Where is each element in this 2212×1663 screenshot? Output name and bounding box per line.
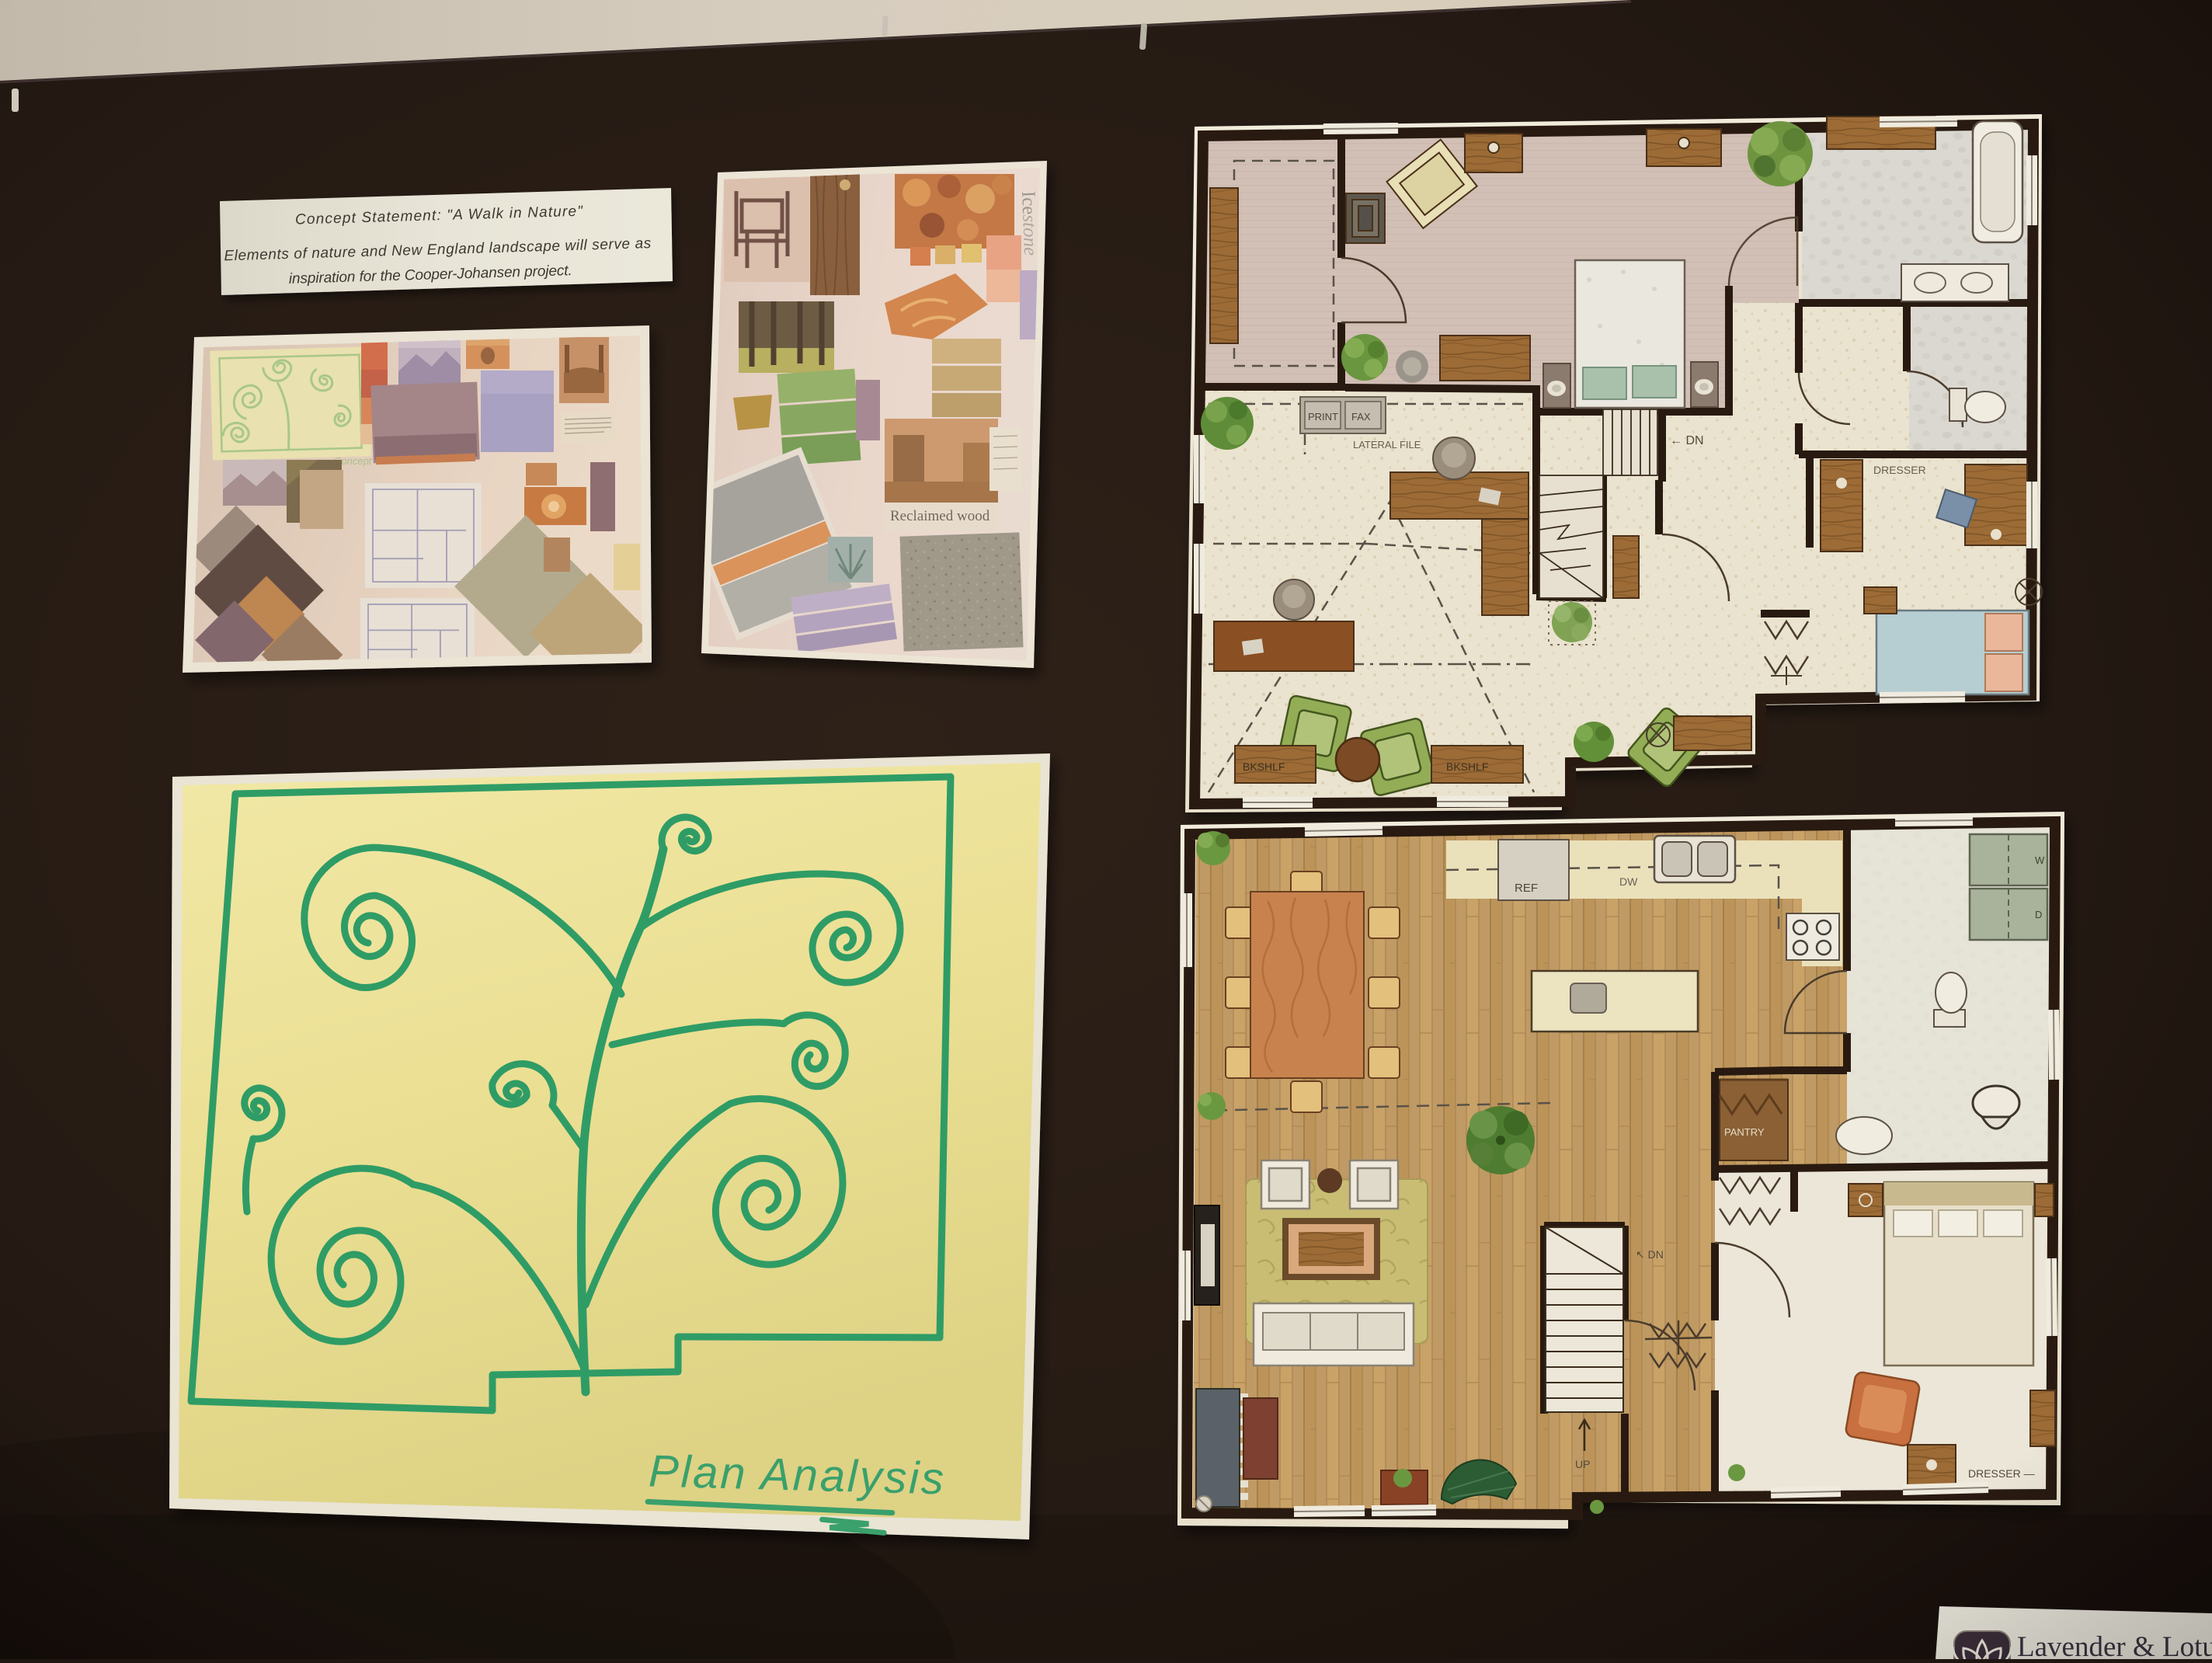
svg-text:↖ DN: ↖ DN bbox=[1636, 1248, 1664, 1261]
svg-text:REF: REF bbox=[1515, 882, 1538, 895]
svg-text:← DN: ← DN bbox=[1670, 434, 1704, 447]
svg-text:BKSHLF: BKSHLF bbox=[1243, 760, 1285, 773]
svg-text:UP: UP bbox=[1575, 1458, 1590, 1470]
svg-text:LATERAL FILE: LATERAL FILE bbox=[1353, 439, 1421, 451]
svg-text:DRESSER: DRESSER bbox=[1873, 464, 1926, 476]
svg-text:Lavender & Lotus: Lavender & Lotus bbox=[2017, 1631, 2212, 1659]
svg-text:DRESSER —: DRESSER — bbox=[1968, 1467, 2035, 1480]
svg-text:PANTRY: PANTRY bbox=[1724, 1126, 1765, 1138]
svg-text:PRINT: PRINT bbox=[1308, 411, 1338, 423]
svg-text:FAX: FAX bbox=[1351, 411, 1371, 423]
svg-text:BKSHLF: BKSHLF bbox=[1446, 760, 1488, 773]
svg-text:D: D bbox=[2035, 909, 2042, 920]
svg-text:W: W bbox=[2035, 854, 2045, 866]
svg-text:DW: DW bbox=[1619, 875, 1638, 888]
